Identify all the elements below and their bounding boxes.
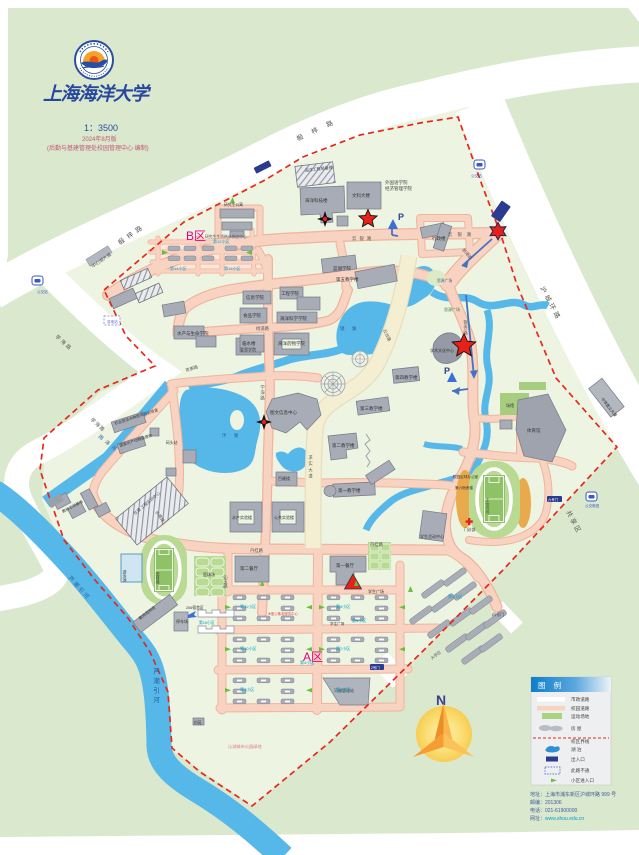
svg-text:四号门: 四号门 [492, 611, 504, 617]
svg-text:场馆: 场馆 [506, 402, 514, 408]
svg-text:第10小区: 第10小区 [240, 645, 256, 651]
svg-text:网址：www.shou.edu.cn: 网址：www.shou.edu.cn [530, 815, 584, 822]
svg-text:游泳池: 游泳池 [123, 569, 128, 582]
svg-text:学生广场: 学生广场 [368, 588, 384, 594]
svg-text:海洋科学学院: 海洋科学学院 [280, 315, 307, 322]
svg-text:蓝湖学院: 蓝湖学院 [333, 265, 351, 272]
svg-text:学术文化中心: 学术文化中心 [430, 347, 454, 353]
svg-text:工程学院: 工程学院 [281, 290, 299, 297]
svg-text:图文信息中心: 图文信息中心 [270, 409, 297, 416]
svg-text:沁玉路: 沁玉路 [223, 574, 229, 590]
svg-text:电话：021-61900000: 电话：021-61900000 [530, 807, 577, 814]
svg-text:泮 湖: 泮 湖 [222, 432, 241, 439]
svg-text:约苑: 约苑 [194, 720, 202, 725]
svg-text:206宿舍区: 206宿舍区 [186, 605, 204, 610]
svg-text:文科大楼: 文科大楼 [352, 192, 370, 199]
svg-text:第8小区: 第8小区 [448, 593, 462, 599]
svg-text:P: P [444, 366, 450, 376]
svg-text:沁湖城市公园绿地: 沁湖城市公园绿地 [228, 743, 262, 750]
svg-text:学生活动中心: 学生活动中心 [420, 533, 444, 539]
svg-text:云 银 路: 云 银 路 [352, 235, 372, 242]
svg-text:第14小区: 第14小区 [170, 265, 186, 271]
svg-text:第3小区: 第3小区 [240, 686, 254, 692]
svg-text:P: P [398, 212, 404, 222]
svg-text:学生广场: 学生广场 [330, 621, 345, 626]
svg-text:第5小区: 第5小区 [352, 617, 366, 623]
svg-text:公交站: 公交站 [471, 173, 482, 178]
svg-text:B区: B区 [186, 229, 206, 243]
svg-text:门诊部: 门诊部 [464, 527, 476, 532]
svg-text:公交枢纽: 公交枢纽 [585, 503, 600, 508]
svg-text:此路不通: 此路不通 [571, 767, 590, 774]
svg-text:第三教学楼: 第三教学楼 [360, 405, 383, 412]
svg-text:第二餐厅: 第二餐厅 [240, 565, 258, 572]
svg-text:上海海洋大学: 上海海洋大学 [43, 83, 152, 104]
svg-text:海洋科技楼: 海洋科技楼 [305, 197, 328, 204]
svg-text:校园道路: 校园道路 [571, 705, 590, 712]
svg-text:海洋药物学院: 海洋药物学院 [278, 340, 305, 347]
svg-text:杨浦路: 杨浦路 [256, 325, 270, 332]
svg-text:学海路: 学海路 [260, 384, 266, 402]
svg-text:百雁楼: 百雁楼 [278, 475, 290, 481]
svg-text:1：3500: 1：3500 [84, 123, 118, 133]
svg-text:邮编：201306: 邮编：201306 [530, 799, 562, 806]
svg-text:第11小区: 第11小区 [240, 603, 256, 609]
svg-text:水产与生命学院: 水产与生命学院 [177, 330, 209, 337]
svg-text:水产实验楼: 水产实验楼 [232, 514, 252, 520]
svg-text:行政楼: 行政楼 [432, 235, 446, 242]
svg-text:田径场: 田径场 [156, 572, 161, 585]
svg-text:2号门: 2号门 [371, 665, 380, 670]
svg-text:求实大道: 求实大道 [308, 454, 314, 480]
svg-text:公共实验楼: 公共实验楼 [274, 514, 294, 520]
svg-text:公交站: 公交站 [37, 289, 48, 294]
svg-text:小区进入口: 小区进入口 [571, 777, 594, 784]
svg-text:出入口: 出入口 [571, 756, 585, 763]
svg-text:第一餐厅: 第一餐厅 [336, 562, 354, 569]
svg-text:云 银 路: 云 银 路 [448, 231, 473, 238]
svg-text:第16小区: 第16小区 [199, 620, 215, 625]
svg-text:第二教学楼: 第二教学楼 [332, 442, 355, 449]
svg-text:第一教学楼: 第一教学楼 [338, 487, 361, 494]
svg-text:第7小区: 第7小区 [336, 645, 350, 651]
svg-text:思源广场: 思源广场 [437, 278, 452, 283]
svg-text:码头站: 码头站 [166, 440, 178, 445]
svg-text:研究生公寓: 研究生公寓 [224, 202, 243, 207]
svg-text:第六宿舍楼: 第六宿舍楼 [455, 485, 473, 490]
svg-text:丹桂路: 丹桂路 [250, 547, 264, 554]
svg-text:2024年8月版: 2024年8月版 [82, 135, 117, 143]
svg-text:湖 泊: 湖 泊 [571, 746, 582, 753]
svg-text:临水楼: 临水楼 [242, 340, 256, 347]
svg-text:N: N [436, 692, 446, 708]
svg-text:房 屋: 房 屋 [571, 725, 582, 732]
svg-text:第四教学楼: 第四教学楼 [395, 374, 418, 381]
svg-text:六号门: 六号门 [548, 497, 559, 502]
svg-text:❋爱心敬老服务中心: ❋爱心敬老服务中心 [268, 611, 299, 616]
svg-text:地址：上海市浦东新区沪城环路 999 号: 地址：上海市浦东新区沪城环路 999 号 [530, 791, 616, 798]
svg-text:银杏路: 银杏路 [463, 319, 469, 337]
svg-text:停车场: 停车场 [176, 618, 188, 624]
svg-text:爱恩学院: 爱恩学院 [240, 346, 256, 352]
svg-text:研究生生活热水供应中心: 研究生生活热水供应中心 [205, 234, 247, 239]
svg-text:校园足球办公室: 校园足球办公室 [453, 474, 479, 479]
svg-text:运动场地: 运动场地 [571, 713, 590, 720]
svg-text:食品学院: 食品学院 [243, 312, 261, 319]
svg-text:第6小区: 第6小区 [336, 686, 350, 692]
svg-text:主体育场: 主体育场 [486, 497, 491, 515]
svg-text:第13小区: 第13小区 [224, 265, 240, 271]
svg-text:第4小区: 第4小区 [300, 659, 314, 665]
svg-text:第9小区: 第9小区 [336, 603, 350, 609]
svg-text:外国语学院: 外国语学院 [385, 179, 408, 186]
svg-text:镜 湖: 镜 湖 [340, 325, 359, 332]
svg-text:丹桂路: 丹桂路 [370, 541, 384, 548]
svg-text:变电站: 变电站 [107, 319, 118, 324]
svg-text:篮球场: 篮球场 [203, 571, 215, 577]
svg-text:市政道路: 市政道路 [571, 696, 590, 703]
svg-text:图 例: 图 例 [538, 680, 564, 690]
svg-text:经济管理学院: 经济管理学院 [385, 185, 412, 192]
svg-text:信息学院: 信息学院 [246, 294, 264, 301]
svg-text:校区界线: 校区界线 [571, 738, 590, 745]
svg-text:体育馆: 体育馆 [527, 427, 541, 434]
svg-text:思源广场: 思源广场 [444, 306, 460, 312]
svg-text:第五教学楼: 第五教学楼 [336, 276, 359, 283]
svg-text:(后勤与基建管理处校园管理中心 编制): (后勤与基建管理处校园管理中心 编制) [47, 144, 149, 152]
